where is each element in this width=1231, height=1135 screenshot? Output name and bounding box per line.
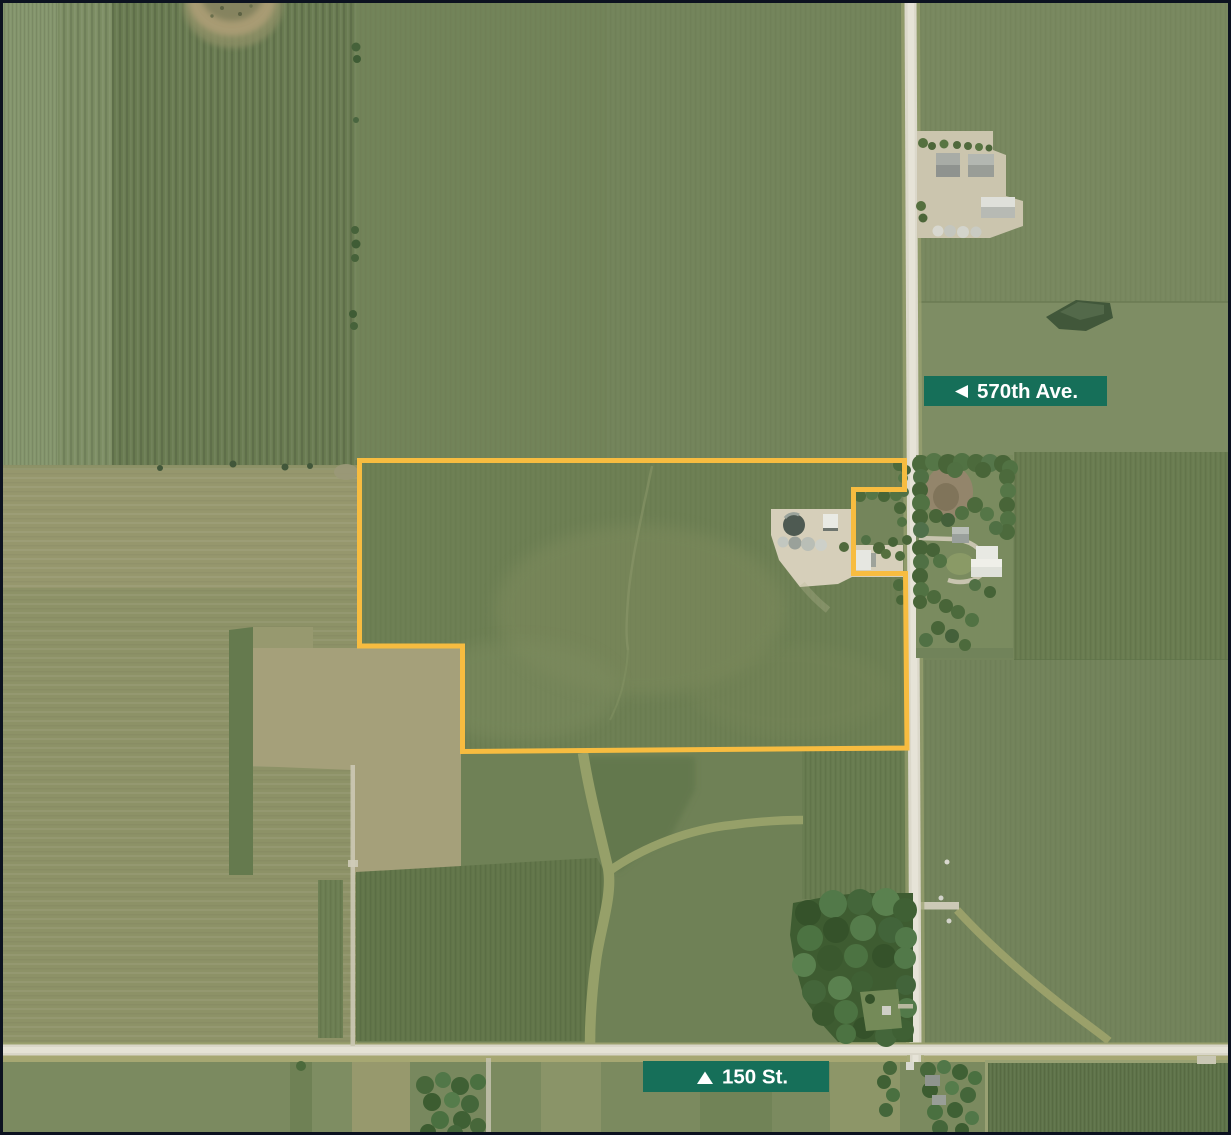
svg-text:150 St.: 150 St. bbox=[722, 1066, 788, 1089]
svg-text:570th Ave.: 570th Ave. bbox=[977, 380, 1078, 403]
